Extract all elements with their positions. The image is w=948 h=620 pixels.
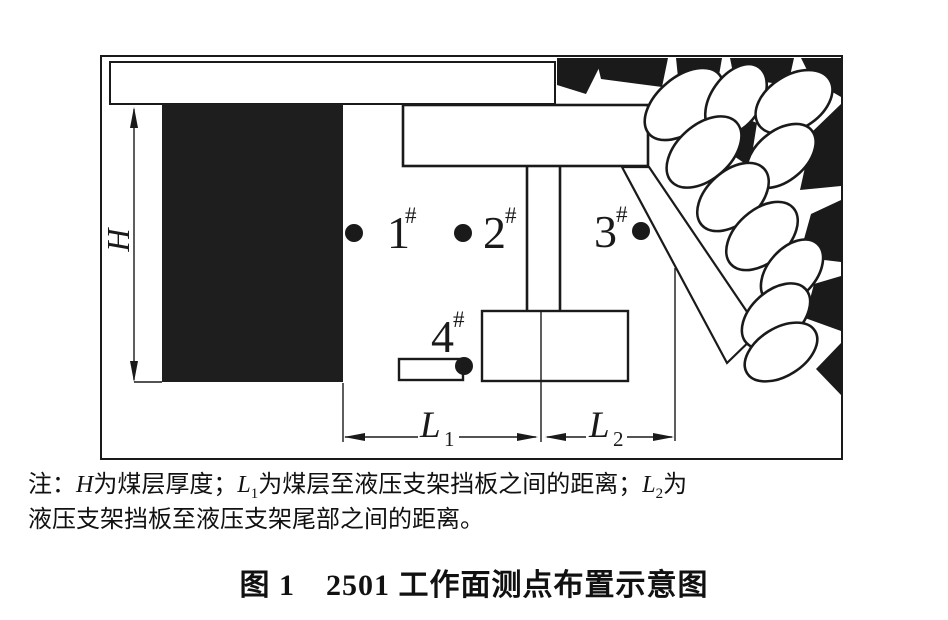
note-line-2: 液压支架挡板至液压支架尾部之间的距离。 xyxy=(28,503,928,538)
h-label: H xyxy=(100,227,136,253)
support-base xyxy=(482,311,628,381)
note-prefix: 注： xyxy=(28,472,76,498)
note-line-1: 注：H为煤层厚度；L1为煤层至液压支架挡板之间的距离；L2为 xyxy=(28,468,928,503)
arrow-left-icon xyxy=(545,433,566,441)
roof-bar xyxy=(110,62,555,104)
measurement-point-1 xyxy=(345,224,363,242)
figure-note: 注：H为煤层厚度；L1为煤层至液压支架挡板之间的距离；L2为 液压支架挡板至液压… xyxy=(28,468,928,538)
point-1-sup: # xyxy=(405,203,417,228)
h-dimension: H xyxy=(100,107,138,382)
arrow-left-icon xyxy=(344,433,365,441)
point-4-sup: # xyxy=(453,307,465,332)
note-l2-text: 为 xyxy=(663,472,687,498)
note-h-var: H xyxy=(76,472,93,498)
figure-page: H L 1 L 2 1 # 2 # 3 # xyxy=(0,0,948,620)
l1-label: L xyxy=(419,405,441,446)
point-2-label: 2 xyxy=(483,207,506,258)
l-dimensions: L 1 L 2 xyxy=(344,405,674,451)
rubble-shape xyxy=(816,343,841,395)
note-l2-sub: 2 xyxy=(656,486,664,502)
support-leg xyxy=(527,166,560,312)
point-3-label: 3 xyxy=(594,206,617,257)
note-l1-var: L xyxy=(237,472,250,498)
arrow-right-icon xyxy=(517,433,538,441)
point-2-sup: # xyxy=(505,203,517,228)
arrow-down-icon xyxy=(130,361,138,382)
l2-label: L xyxy=(588,405,610,446)
arrow-up-icon xyxy=(130,107,138,128)
point-3-sup: # xyxy=(616,202,628,227)
arrow-right-icon xyxy=(653,433,674,441)
coal-seam-block xyxy=(162,104,343,382)
note-h-text: 为煤层厚度； xyxy=(93,472,237,498)
measurement-point-2 xyxy=(454,224,472,242)
support-canopy xyxy=(403,105,648,166)
rubble-shape xyxy=(557,58,604,94)
plank xyxy=(399,359,463,380)
note-l2-var: L xyxy=(642,472,655,498)
l1-label-sub: 1 xyxy=(444,427,455,451)
point-4-label: 4 xyxy=(431,311,454,362)
measurement-point-3 xyxy=(632,222,650,240)
figure-caption: 图 1 2501 工作面测点布置示意图 xyxy=(0,560,948,604)
rubble-shape xyxy=(596,58,668,87)
l2-label-sub: 2 xyxy=(613,427,624,451)
measurement-point-4 xyxy=(455,357,473,375)
note-l1-text: 为煤层至液压支架挡板之间的距离； xyxy=(258,472,642,498)
